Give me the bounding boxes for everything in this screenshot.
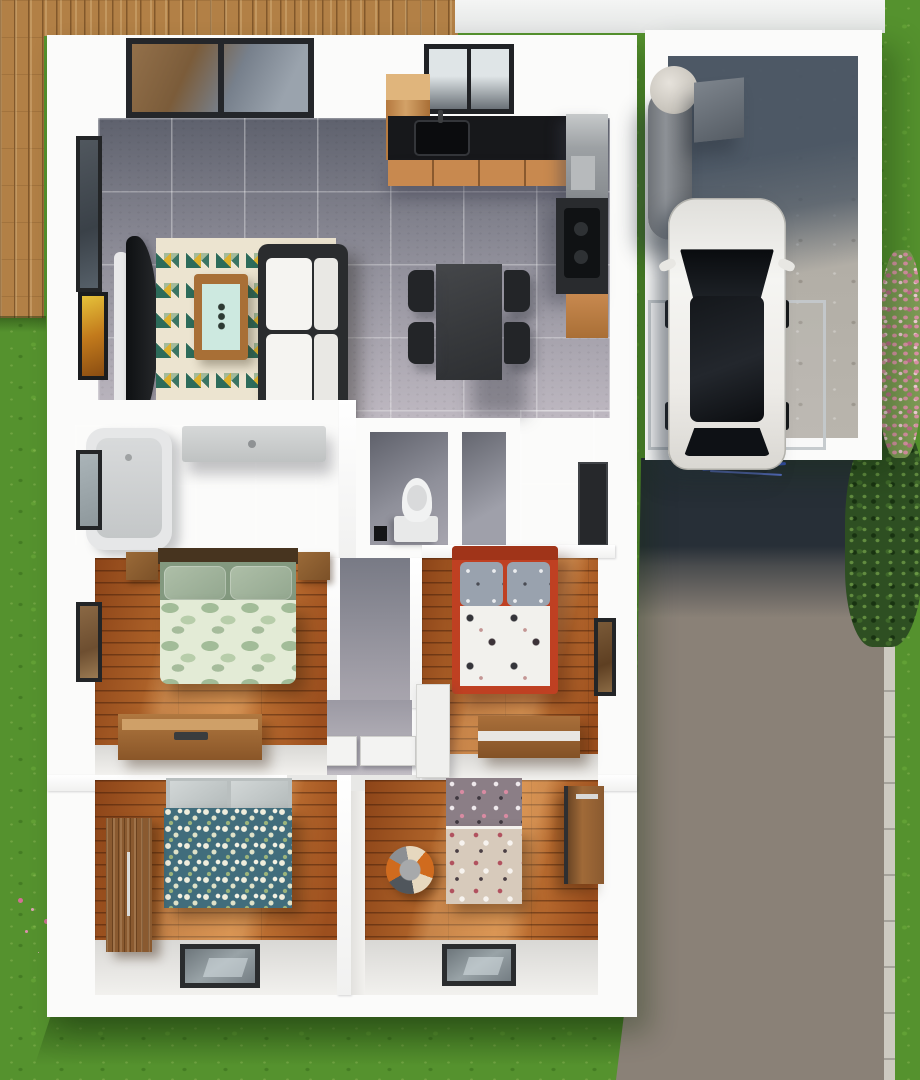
closet-floor xyxy=(462,432,506,545)
sofa-back-cushion xyxy=(314,258,338,330)
wood-deck-top xyxy=(0,0,458,36)
bed-pink-blanket xyxy=(446,778,522,830)
kitchen-cabinet-front xyxy=(388,160,572,186)
nightstand xyxy=(126,552,158,580)
wood-deck-left xyxy=(0,0,44,318)
coffee-table-decor xyxy=(217,302,226,330)
kitchen-faucet xyxy=(438,110,443,123)
bed-white-duvet xyxy=(460,606,550,686)
car-windshield xyxy=(680,244,774,298)
stove-burner xyxy=(574,222,588,236)
bed-red-frame xyxy=(452,546,558,694)
stove-top xyxy=(564,208,600,278)
pillow xyxy=(231,781,288,811)
dining-chair xyxy=(408,322,434,364)
bedroom-red-window xyxy=(594,618,616,696)
pink-flowering-bush xyxy=(878,250,920,458)
car-rear-window xyxy=(684,428,770,456)
window-reflection xyxy=(203,958,248,977)
stove-burner xyxy=(574,250,588,264)
wall-segment xyxy=(337,775,351,995)
grass-flowers xyxy=(18,898,23,903)
dining-chair xyxy=(504,322,530,364)
desk-item xyxy=(576,794,598,799)
wood-desk xyxy=(564,786,604,884)
bedroom-pink-wall-face-left xyxy=(351,791,365,995)
sliding-glass-door xyxy=(126,38,314,118)
dining-chair xyxy=(408,270,434,312)
dresser xyxy=(478,716,580,758)
white-car xyxy=(666,198,788,470)
fridge xyxy=(566,114,608,198)
bathtub-basin xyxy=(96,438,162,538)
deck-shadow xyxy=(0,316,46,332)
bed-pink-duvet xyxy=(446,826,522,904)
bed-pillow-area xyxy=(160,562,296,604)
bed-pillow-area xyxy=(460,562,550,608)
water-tank-lid xyxy=(650,66,698,114)
bathroom-vanity xyxy=(182,426,326,462)
bedroom-teal-window xyxy=(180,944,260,988)
white-desk xyxy=(416,684,450,778)
toilet-bowl xyxy=(402,478,432,522)
pillow xyxy=(460,562,503,606)
dresser-stripe xyxy=(478,731,580,741)
stove-counter xyxy=(556,198,608,294)
dresser xyxy=(118,714,262,760)
window-reflection xyxy=(463,957,504,975)
sofa-back-cushion xyxy=(314,334,338,406)
dining-chair xyxy=(504,270,530,312)
floor-plan-scene xyxy=(0,0,920,1080)
fridge-top-detail xyxy=(571,156,595,190)
nightstand xyxy=(298,552,330,580)
dining-table xyxy=(436,264,502,380)
bed-green-duvet xyxy=(160,600,296,684)
bathroom-window xyxy=(76,450,102,530)
wall-segment xyxy=(339,400,356,558)
sofa-cushion xyxy=(266,334,312,406)
living-room-window xyxy=(76,136,102,292)
open-door-panel xyxy=(360,736,416,766)
kitchen-lower-cabinet xyxy=(566,294,608,338)
sofa-cushion xyxy=(266,258,312,330)
toilet-seat xyxy=(407,485,427,511)
exterior-path xyxy=(455,0,885,33)
sofa xyxy=(258,244,348,422)
driveway-curb xyxy=(884,598,895,1080)
vanity-faucet xyxy=(248,440,256,448)
water-heater-box xyxy=(694,77,744,142)
kitchen-sink xyxy=(414,120,470,156)
kitchen-window-divider xyxy=(467,49,471,109)
bathtub-drain xyxy=(125,454,132,461)
bedroom-pink-window xyxy=(442,944,516,986)
waste-bin xyxy=(374,526,387,541)
ball-ottoman xyxy=(386,846,434,894)
pillow xyxy=(230,566,292,600)
dresser-top xyxy=(122,719,258,730)
kitchen-window xyxy=(424,44,514,114)
house-shadow xyxy=(34,1012,648,1066)
pillow xyxy=(164,566,226,600)
coffee-table xyxy=(194,274,248,360)
side-entry-door xyxy=(578,462,608,546)
car-roof-sunroof xyxy=(690,296,764,422)
bedroom-green-window xyxy=(76,602,102,682)
pillow xyxy=(507,562,550,606)
sliding-door-divider xyxy=(218,44,224,112)
wall-art-frame xyxy=(78,292,108,380)
kitchen-cabinet-top xyxy=(386,74,430,100)
dresser-items xyxy=(174,732,208,740)
wardrobe xyxy=(106,818,152,952)
wall-segment xyxy=(327,558,340,713)
pillow xyxy=(170,781,227,811)
bed-teal-duvet xyxy=(164,808,292,908)
wardrobe-handle xyxy=(127,852,130,916)
bed-headboard xyxy=(452,546,558,560)
